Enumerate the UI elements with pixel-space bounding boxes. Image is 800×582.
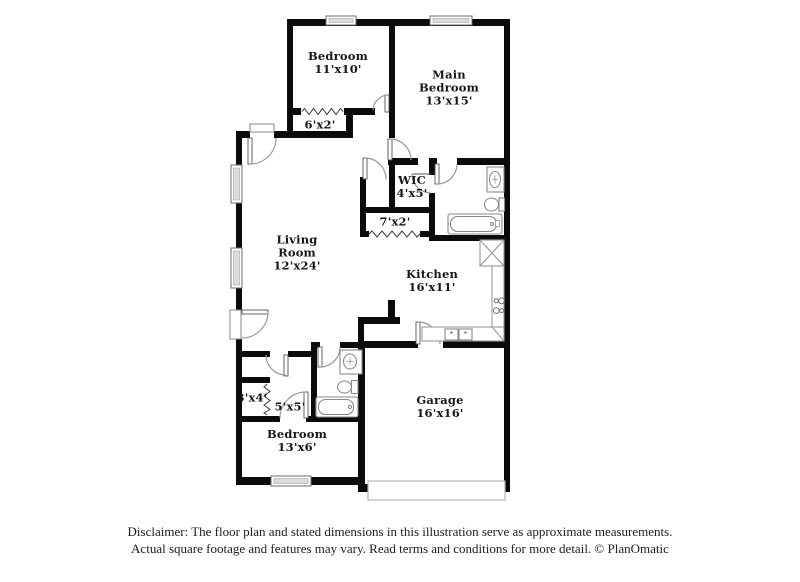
window-left-lower xyxy=(231,248,242,288)
room-label-kitchen: Kitchen 16'x11' xyxy=(406,268,458,294)
room-dims: 11'x10' xyxy=(308,63,368,76)
main-bath-toilet-icon xyxy=(485,198,505,211)
disclaimer-line-2: Actual square footage and features may v… xyxy=(0,540,800,557)
room-name: Living Room xyxy=(269,234,325,260)
room-dims: 12'x24' xyxy=(269,259,325,272)
closet-rod-7x2 xyxy=(369,231,420,237)
room-dims: 6'x2' xyxy=(305,119,336,132)
front-door xyxy=(248,124,276,164)
window-bottom-bedroom xyxy=(271,476,311,486)
garage-door xyxy=(368,481,505,500)
kitchen-sink-icon xyxy=(445,329,472,340)
room-dims: 5'x5' xyxy=(275,401,306,414)
room-name: WIC xyxy=(397,174,428,187)
room-name: Bedroom xyxy=(267,428,327,441)
fixtures xyxy=(316,167,505,500)
room-dims: 4'x5' xyxy=(397,187,428,200)
room-dims: 13'x15' xyxy=(414,94,484,107)
room-label-living-room: Living Room 12'x24' xyxy=(269,234,325,273)
room-label-closet-3x4: 3'x4' xyxy=(237,392,268,405)
room-name: Garage xyxy=(416,394,463,407)
room-label-main-bedroom: Main Bedroom 13'x15' xyxy=(414,69,484,108)
bedroom1-door xyxy=(373,95,389,112)
room-label-garage: Garage 16'x16' xyxy=(416,394,463,420)
bathroom2-door xyxy=(318,347,340,367)
window-top-bedroom xyxy=(326,16,356,25)
water-heater-icon xyxy=(480,240,504,266)
room-label-wic: WIC 4'x5' xyxy=(397,174,428,200)
room-name: Kitchen xyxy=(406,268,458,281)
window-top-main-bedroom xyxy=(430,16,472,25)
hall-door xyxy=(266,355,288,376)
bath2-bathtub-icon xyxy=(316,397,358,417)
room-dims: 13'x6' xyxy=(267,441,327,454)
room-label-closet-7x2: 7'x2' xyxy=(380,216,411,229)
room-label-closet-6x2: 6'x2' xyxy=(305,119,336,132)
room-label-bedroom-1: Bedroom 11'x10' xyxy=(308,50,368,76)
room-name: Bedroom xyxy=(308,50,368,63)
main-bath-sink-icon xyxy=(487,167,504,192)
main-bedroom-door xyxy=(388,139,411,160)
bath2-sink-icon xyxy=(340,350,362,374)
hallway-door xyxy=(363,158,386,179)
disclaimer-line-1: Disclaimer: The floor plan and stated di… xyxy=(0,523,800,540)
room-dims: 3'x4' xyxy=(237,392,268,405)
floor-plan-drawing xyxy=(0,0,800,582)
main-bath-bathtub-icon xyxy=(448,214,502,234)
floor-plan-page: Bedroom 11'x10' Main Bedroom 13'x15' 6'x… xyxy=(0,0,800,582)
kitchen-counter-right xyxy=(492,266,504,327)
room-label-hall-5x5: 5'x5' xyxy=(275,401,306,414)
room-dims: 7'x2' xyxy=(380,216,411,229)
bath2-toilet-icon xyxy=(338,381,359,394)
room-dims: 16'x11' xyxy=(406,281,458,294)
main-bathroom-door xyxy=(435,164,457,184)
closet-rod-6x2 xyxy=(302,109,343,115)
room-label-bedroom-2: Bedroom 13'x6' xyxy=(267,428,327,454)
room-name: Main Bedroom xyxy=(414,69,484,95)
disclaimer-text: Disclaimer: The floor plan and stated di… xyxy=(0,523,800,557)
window-left-upper xyxy=(231,165,242,203)
room-dims: 16'x16' xyxy=(416,407,463,420)
side-door xyxy=(230,310,268,339)
